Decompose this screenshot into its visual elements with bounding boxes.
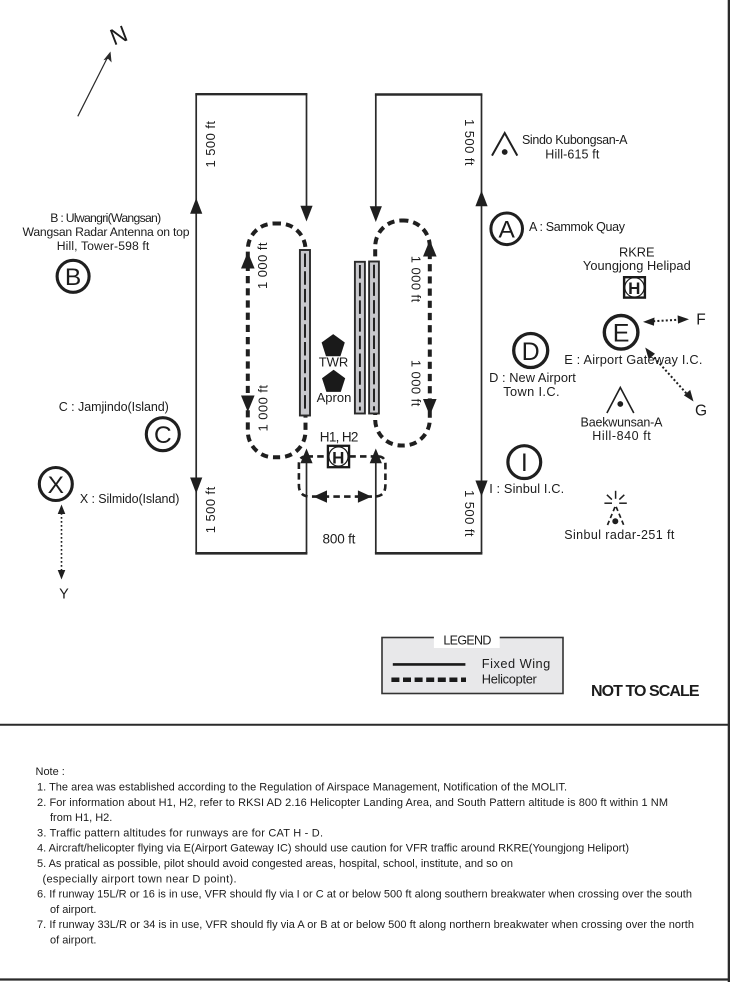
svg-text:1 500 ft: 1 500 ft: [203, 486, 218, 533]
svg-text:of airport.: of airport.: [50, 935, 96, 947]
svg-text:Youngjong Helipad: Youngjong Helipad: [583, 258, 691, 273]
svg-text:3. Traffic pattern altitudes f: 3. Traffic pattern altitudes for runways…: [37, 827, 323, 839]
svg-text:4. Aircraft/helicopter flying: 4. Aircraft/helicopter flying via E(Airp…: [37, 843, 629, 855]
svg-text:Note :: Note :: [36, 766, 65, 778]
svg-text:5. As pratical as possible, pi: 5. As pratical as possible, pilot should…: [37, 858, 513, 870]
svg-text:NOT TO SCALE: NOT TO SCALE: [591, 683, 700, 700]
svg-text:Town I.C.: Town I.C.: [503, 384, 559, 399]
svg-text:1 000 ft: 1 000 ft: [255, 385, 270, 432]
svg-text:I: I: [521, 449, 528, 477]
svg-text:H: H: [628, 279, 640, 298]
svg-text:Wangsan Radar Antenna on t: Wangsan Radar Antenna on top: [23, 225, 190, 239]
svg-text:(especially airport town near: (especially airport town near D point).: [43, 873, 237, 885]
svg-text:TWR: TWR: [319, 355, 349, 370]
svg-text:Y: Y: [59, 587, 69, 603]
svg-text:1. The area was established ac: 1. The area was established according to…: [37, 782, 567, 794]
svg-text:1 500 ft: 1 500 ft: [462, 490, 477, 537]
svg-text:Fixed Wing: Fixed Wing: [482, 656, 551, 671]
svg-text:1 500 ft: 1 500 ft: [203, 121, 218, 168]
svg-text:Baekwunsan-A: Baekwunsan-A: [581, 416, 664, 430]
svg-text:B : Ulwangri(Wangsan): B : Ulwangri(Wangsan): [50, 211, 161, 225]
svg-text:C: C: [154, 422, 172, 449]
svg-text:Hill, Tower-598 ft: Hill, Tower-598 ft: [57, 239, 150, 253]
svg-text:1 500 ft: 1 500 ft: [462, 119, 477, 166]
svg-text:of airport.: of airport.: [50, 904, 96, 916]
svg-text:D : New Airport: D : New Airport: [489, 370, 576, 385]
svg-text:F: F: [696, 312, 705, 329]
svg-text:B: B: [65, 264, 81, 291]
svg-text:Sindo Kubongsan-A: Sindo Kubongsan-A: [522, 133, 628, 147]
svg-text:2. For information about H1, H: 2. For information about H1, H2, refer t…: [37, 797, 668, 809]
svg-text:7. If runway 33L/R or 34 is in: 7. If runway 33L/R or 34 is in use, VFR …: [37, 919, 694, 931]
svg-text:H1, H2: H1, H2: [320, 430, 359, 445]
svg-text:Helicopter: Helicopter: [482, 671, 538, 686]
svg-text:E: E: [613, 320, 630, 348]
svg-text:H: H: [332, 448, 344, 467]
svg-text:Hill-840 ft: Hill-840 ft: [592, 429, 651, 443]
svg-text:X: X: [48, 472, 64, 499]
svg-text:LEGEND: LEGEND: [443, 634, 491, 648]
svg-text:D: D: [522, 338, 540, 366]
svg-text:800 ft: 800 ft: [323, 531, 356, 546]
svg-text:1 000 ft: 1 000 ft: [408, 256, 423, 303]
svg-text:1 000 ft: 1 000 ft: [255, 242, 270, 289]
svg-text:from H1, H2.: from H1, H2.: [50, 812, 112, 824]
svg-text:X : Silmido(Island): X : Silmido(Island): [80, 492, 179, 506]
svg-text:1 000 ft: 1 000 ft: [408, 360, 423, 407]
svg-text:A : Sammok Quay: A : Sammok Quay: [529, 220, 626, 234]
svg-text:I : Sinbul I.C.: I : Sinbul I.C.: [489, 481, 564, 496]
svg-text:Apron: Apron: [317, 390, 352, 405]
svg-text:6. If runway 15L/R or 16 is in: 6. If runway 15L/R or 16 is in use, VFR …: [37, 889, 692, 901]
svg-text:Sinbul radar-251 ft: Sinbul radar-251 ft: [564, 528, 675, 542]
svg-text:E : Airport Gateway I.C.: E : Airport Gateway I.C.: [564, 352, 702, 367]
svg-text:G: G: [695, 403, 707, 420]
svg-text:Hill-615 ft: Hill-615 ft: [545, 147, 600, 161]
svg-text:A: A: [499, 217, 516, 244]
svg-text:C : Jamjindo(Island): C : Jamjindo(Island): [59, 400, 169, 414]
